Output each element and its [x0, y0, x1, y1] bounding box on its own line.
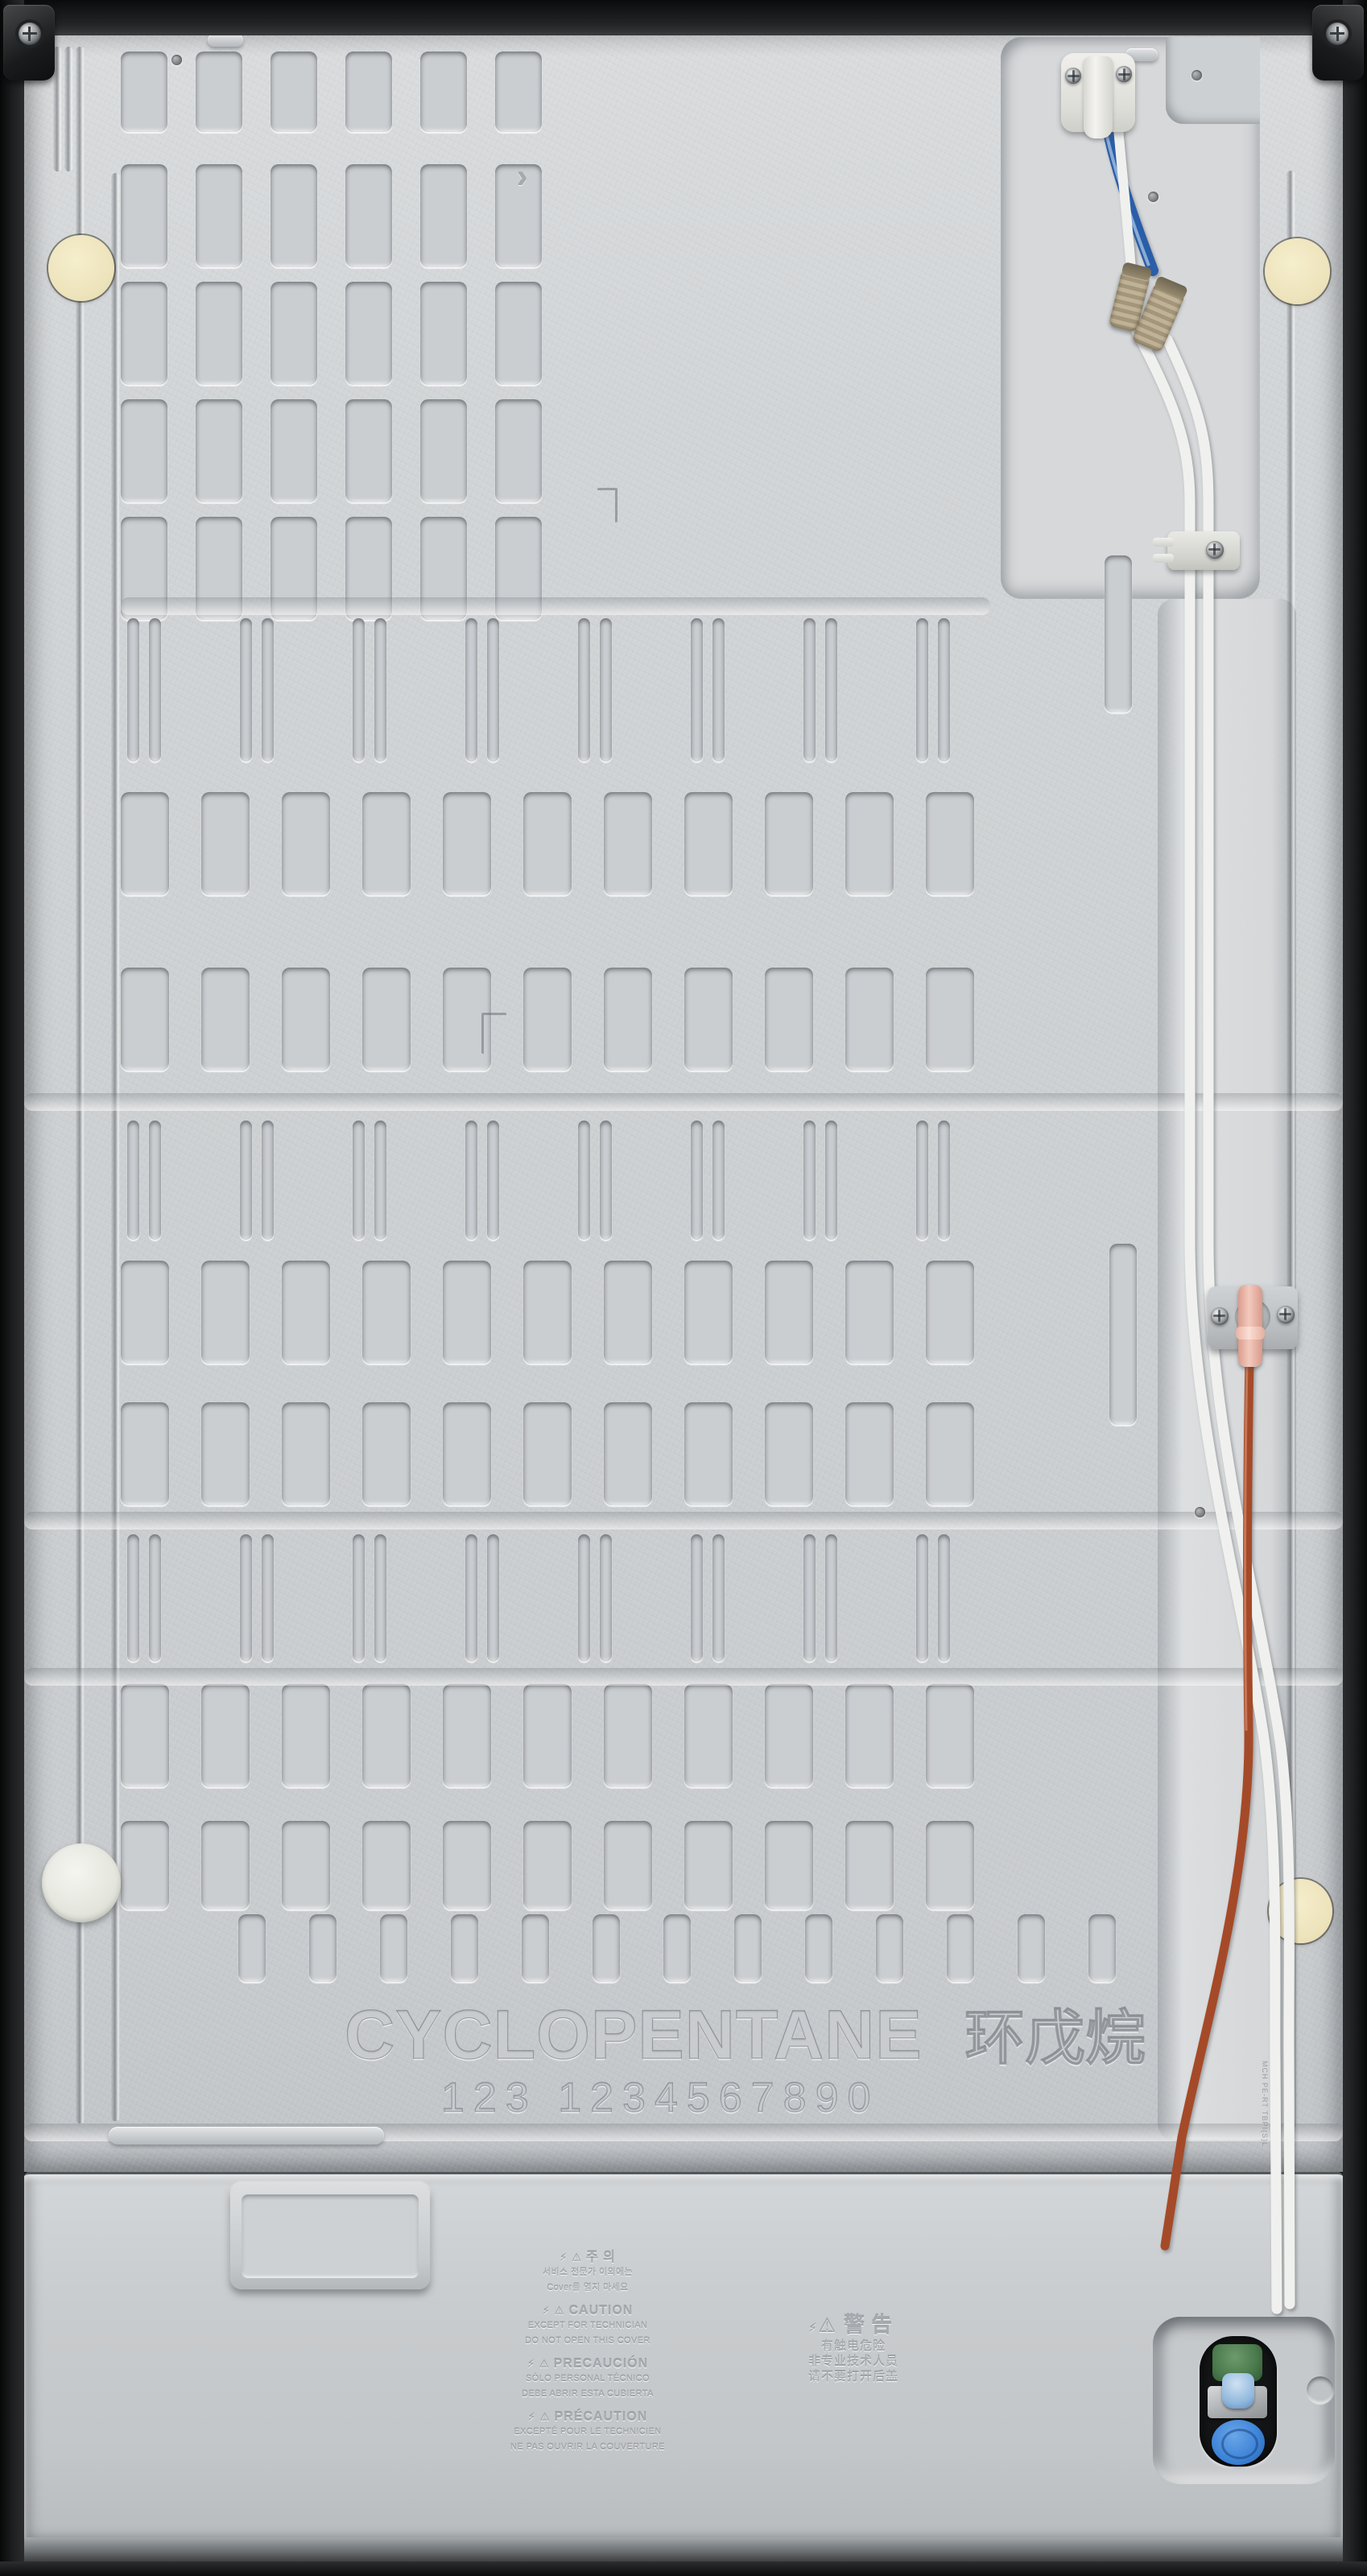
- embossed-slot-thin: [487, 1534, 499, 1662]
- caution-line: NE PAS OUVRIR LA COUVERTURE: [491, 2440, 684, 2455]
- embossed-slot: [201, 1684, 250, 1787]
- embossed-slot-thin: [374, 618, 386, 762]
- rivet: [1191, 70, 1202, 80]
- warning-line: 有触电危险: [793, 2339, 914, 2354]
- cover-bottom-edge: [24, 2537, 1343, 2562]
- tube-print-text: MCH PE-RT TBPI(S)L: [1261, 2061, 1269, 2147]
- warning-triangle-icon: ⚠: [819, 2315, 840, 2337]
- embossed-slot: [926, 1821, 974, 1909]
- embossed-slot: [345, 164, 392, 267]
- embossed-slot: [443, 792, 491, 895]
- embossed-slot-thin: [938, 1121, 950, 1240]
- embossed-slot-thin: [374, 1121, 386, 1240]
- embossed-slot: [765, 1684, 813, 1787]
- embossed-slot: [523, 1402, 572, 1505]
- embossed-slot: [926, 1684, 974, 1787]
- bracket-screw: [1065, 68, 1081, 84]
- embossed-slot: [604, 968, 652, 1071]
- recess-step: [1166, 37, 1260, 124]
- embossed-slot-thin: [465, 1534, 477, 1662]
- panel-groove: [76, 47, 85, 2124]
- lightning-icon: ⚡: [543, 2305, 551, 2317]
- embossed-slot: [121, 1261, 169, 1364]
- embossed-slot: [345, 282, 392, 385]
- embossed-slot-thin: [938, 618, 950, 762]
- embossed-slot-thin: [916, 1121, 928, 1240]
- embossed-slot: [345, 52, 392, 132]
- caution-label-column: ⚡⚠주 의 서비스 전문가 이외에는 Cover를 열지 마세요 ⚡⚠CAUTI…: [491, 2238, 684, 2455]
- tube-exit-bracket: [1061, 53, 1135, 132]
- embossed-slot-thin: [262, 1121, 274, 1240]
- caution-line: SÓLO PERSONAL TÉCNICO: [491, 2372, 684, 2387]
- embossed-slot: [201, 968, 250, 1071]
- embossed-slot: [845, 1261, 894, 1364]
- corner-bracket-top-left: [3, 5, 55, 80]
- water-inlet-cap: [1212, 2420, 1265, 2465]
- embossed-slot: [604, 1821, 652, 1909]
- embossed-slot: [362, 792, 411, 895]
- embossed-slot-thin: [712, 1121, 725, 1240]
- warning-triangle-icon: ⚠: [572, 2252, 582, 2264]
- embossed-slot: [282, 1402, 330, 1505]
- embossed-slot-thin: [578, 1534, 590, 1662]
- embossed-slot-thin: [487, 1121, 499, 1240]
- embossed-slot-thin: [691, 618, 703, 762]
- clamp-prong: [1153, 554, 1174, 563]
- embossed-slot: [201, 1402, 250, 1505]
- embossed-slot-narrow: [876, 1914, 903, 1982]
- embossed-slot: [604, 1261, 652, 1364]
- embossed-slot: [684, 1402, 733, 1505]
- caution-label-korean: ⚡⚠주 의 서비스 전문가 이외에는 Cover를 열지 마세요: [491, 2246, 684, 2296]
- embossed-slot-thin: [353, 618, 365, 762]
- embossed-slot: [201, 1261, 250, 1364]
- embossed-slot: [684, 1821, 733, 1909]
- caution-label-english: ⚡⚠CAUTION EXCEPT FOR TECHNICIAN DO NOT O…: [491, 2304, 684, 2349]
- embossed-slot-thin: [938, 1534, 950, 1662]
- rivet: [1148, 192, 1158, 202]
- lightning-icon: ⚡: [560, 2252, 568, 2264]
- embossed-slot: [271, 52, 317, 132]
- embossed-slot-narrow: [947, 1914, 974, 1982]
- embossed-slot-thin: [691, 1534, 703, 1662]
- embossed-slot: [196, 399, 242, 502]
- embossed-slot-thin: [1105, 555, 1132, 712]
- embossed-slot: [765, 1821, 813, 1909]
- warning-title-chinese: 警告: [844, 2313, 898, 2337]
- panel-crease: [24, 1093, 1343, 1111]
- embossed-slot-thin: [600, 1534, 612, 1662]
- refrigerator-back-panel-photo: CYCLOPENTANE 环戊烷 123 1234567890 › ⚡⚠주 의 …: [0, 0, 1367, 2576]
- water-inlet-fitting: [1222, 2373, 1254, 2409]
- embossed-slot-thin: [262, 1534, 274, 1662]
- embossed-slot: [282, 1261, 330, 1364]
- embossed-slot: [604, 792, 652, 895]
- embossed-slot-thin: [127, 618, 139, 762]
- embossed-slot: [201, 1821, 250, 1909]
- lightning-icon: ⚡: [808, 2322, 819, 2335]
- embossed-slot: [926, 792, 974, 895]
- embossed-slot-thin: [916, 1534, 928, 1662]
- caution-line: EXCEPTÉ POUR LE TECHNICIEN: [491, 2425, 684, 2440]
- bracket-screw: [1116, 66, 1132, 82]
- warning-line: 非专业技术人员: [793, 2354, 914, 2369]
- embossed-slot: [362, 1684, 411, 1787]
- embossed-slot: [443, 1821, 491, 1909]
- caution-line: Cover를 열지 마세요: [491, 2281, 684, 2296]
- embossed-slot: [282, 968, 330, 1071]
- embossed-rib: [208, 34, 243, 47]
- embossed-slot: [201, 792, 250, 895]
- embossed-rib: [109, 2127, 384, 2145]
- embossed-slot: [523, 968, 572, 1071]
- tube-bracket-tab: [1084, 56, 1113, 138]
- anchor-screw: [1277, 1306, 1295, 1323]
- warning-triangle-icon: ⚠: [540, 2411, 551, 2423]
- embossed-slot: [926, 968, 974, 1071]
- lightning-icon: ⚡: [528, 2411, 536, 2423]
- embossed-slot-thin: [240, 618, 252, 762]
- caution-title-french: PRÉCAUTION: [555, 2410, 648, 2424]
- caution-line: 서비스 전문가 이외에는: [491, 2265, 684, 2281]
- embossed-slot: [121, 282, 167, 385]
- embossed-slot-thin: [578, 618, 590, 762]
- embossed-slot: [765, 792, 813, 895]
- embossed-slot: [523, 1821, 572, 1909]
- caution-title-english: CAUTION: [568, 2304, 633, 2318]
- foam-pad-top-right: [1265, 238, 1330, 304]
- embossed-slot: [121, 792, 169, 895]
- caution-line: DEBE ABRIR ESTA CUBIERTA: [491, 2387, 684, 2402]
- lightning-icon: ⚡: [527, 2358, 535, 2370]
- embossed-slot: [523, 1261, 572, 1364]
- cabinet-left-edge: [0, 0, 24, 2576]
- embossed-slot: [121, 164, 167, 267]
- embossed-slot: [845, 1684, 894, 1787]
- embossed-slot: [271, 282, 317, 385]
- caution-title-korean: 주 의: [586, 2251, 616, 2264]
- corner-bracket-top-right: [1312, 5, 1364, 80]
- embossed-slot-thin: [465, 1121, 477, 1240]
- embossed-slot-thin: [149, 618, 161, 762]
- embossed-slot: [443, 1684, 491, 1787]
- embossed-slot: [121, 1821, 169, 1909]
- embossed-slot-thin: [353, 1121, 365, 1240]
- cyclopentane-cjk-label: 环戊烷: [964, 2004, 1146, 2071]
- embossed-slot: [362, 1821, 411, 1909]
- embossed-slot: [523, 1684, 572, 1787]
- rating-plate-face: [242, 2194, 419, 2278]
- embossed-slot: [684, 1684, 733, 1787]
- embossed-slot: [121, 968, 169, 1071]
- embossed-slot: [495, 399, 542, 502]
- plug-cap-bottom-left: [42, 1843, 121, 1922]
- embossed-digits-text: 123 1234567890: [441, 2074, 879, 2122]
- embossed-slot-thin: [353, 1534, 365, 1662]
- embossed-slot-thin: [374, 1534, 386, 1662]
- embossed-slot: [765, 1402, 813, 1505]
- embossed-slot-thin: [803, 618, 816, 762]
- rivet: [1195, 1507, 1205, 1517]
- cabinet-right-edge: [1343, 0, 1367, 2576]
- embossed-slot-thin: [825, 1121, 837, 1240]
- corner-screw: [1326, 23, 1348, 45]
- embossed-slot-narrow: [522, 1914, 549, 1982]
- warning-triangle-icon: ⚠: [539, 2358, 550, 2370]
- alignment-mark: [597, 488, 617, 522]
- caution-label-french: ⚡⚠PRÉCAUTION EXCEPTÉ POUR LE TECHNICIEN …: [491, 2410, 684, 2455]
- embossed-slot-thin: [825, 618, 837, 762]
- tube-clamp: [1167, 531, 1240, 570]
- embossed-slot: [282, 1821, 330, 1909]
- embossed-slot-thin: [803, 1534, 816, 1662]
- embossed-slot-thin: [240, 1121, 252, 1240]
- embossed-slot: [196, 164, 242, 267]
- embossed-cyclopentane-text: CYCLOPENTANE 环戊烷: [345, 1990, 1146, 2076]
- embossed-slot-thin: [916, 618, 928, 762]
- embossed-slot: [845, 1402, 894, 1505]
- clamp-prong: [1153, 538, 1174, 547]
- embossed-slot: [604, 1684, 652, 1787]
- rivet: [171, 55, 182, 65]
- anchor-screw: [1211, 1307, 1229, 1325]
- panel-groove: [111, 173, 120, 2121]
- embossed-slot: [282, 792, 330, 895]
- embossed-slot: [362, 1261, 411, 1364]
- chevron-emboss: ›: [517, 159, 527, 196]
- embossed-slot: [196, 52, 242, 132]
- foam-pad-top-left: [48, 235, 114, 301]
- embossed-slot: [443, 1261, 491, 1364]
- embossed-slot: [362, 968, 411, 1071]
- embossed-slot-thin: [825, 1534, 837, 1662]
- caution-title-spanish: PRECAUCIÓN: [554, 2357, 649, 2371]
- embossed-slot-thin: [262, 618, 274, 762]
- embossed-slot: [684, 968, 733, 1071]
- embossed-slot-thin: [578, 1121, 590, 1240]
- embossed-slot: [684, 1261, 733, 1364]
- cyclopentane-label: CYCLOPENTANE: [345, 1996, 923, 2074]
- embossed-slot: [845, 792, 894, 895]
- embossed-slot-narrow: [805, 1914, 832, 1982]
- embossed-slot: [765, 968, 813, 1071]
- embossed-slot-thin: [1109, 1244, 1137, 1425]
- embossed-slot-thin: [600, 618, 612, 762]
- embossed-slot-narrow: [380, 1914, 407, 1982]
- embossed-slot: [684, 792, 733, 895]
- embossed-slot: [845, 1821, 894, 1909]
- embossed-slot: [196, 282, 242, 385]
- embossed-slot-thin: [465, 618, 477, 762]
- embossed-slot-thin: [127, 1121, 139, 1240]
- clamp-screw: [1206, 541, 1224, 559]
- embossed-slot: [420, 282, 467, 385]
- embossed-slot-thin: [803, 1121, 816, 1240]
- embossed-slot: [345, 399, 392, 502]
- embossed-slot: [604, 1402, 652, 1505]
- caution-line: EXCEPT FOR TECHNICIAN: [491, 2318, 684, 2334]
- cabinet-top-edge: [0, 0, 1367, 35]
- embossed-slot: [926, 1402, 974, 1505]
- embossed-slot: [495, 52, 542, 132]
- embossed-slot: [420, 52, 467, 132]
- panel-groove: [64, 47, 73, 171]
- caution-label-spanish: ⚡⚠PRECAUCIÓN SÓLO PERSONAL TÉCNICO DEBE …: [491, 2357, 684, 2402]
- embossed-slot-thin: [487, 618, 499, 762]
- embossed-slot: [271, 164, 317, 267]
- embossed-slot-narrow: [309, 1914, 337, 1982]
- embossed-slot-thin: [712, 1534, 725, 1662]
- corner-screw: [19, 23, 41, 45]
- embossed-slot-narrow: [1088, 1914, 1116, 1982]
- embossed-slot: [523, 792, 572, 895]
- embossed-slot: [845, 968, 894, 1071]
- embossed-slot-thin: [600, 1121, 612, 1240]
- embossed-slot-thin: [149, 1534, 161, 1662]
- embossed-slot-thin: [712, 618, 725, 762]
- panel-groove: [1286, 171, 1295, 2122]
- embossed-slot: [443, 1402, 491, 1505]
- pink-tube-connector: [1238, 1285, 1262, 1367]
- warning-triangle-icon: ⚠: [555, 2305, 565, 2317]
- embossed-slot: [121, 399, 167, 502]
- warning-line: 请不要打开后盖: [793, 2369, 914, 2384]
- panel-crease: [24, 1512, 1343, 1529]
- embossed-slot-thin: [240, 1534, 252, 1662]
- panel-crease: [121, 597, 990, 615]
- floor-shadow: [0, 2562, 1367, 2576]
- embossed-slot-thin: [149, 1121, 161, 1240]
- caution-line: DO NOT OPEN THIS COVER: [491, 2334, 684, 2349]
- alignment-mark: [481, 1013, 506, 1054]
- embossed-slot-narrow: [451, 1914, 478, 1982]
- embossed-slot: [362, 1402, 411, 1505]
- embossed-slot-thin: [691, 1121, 703, 1240]
- access-hole: [1307, 2376, 1334, 2404]
- embossed-slot: [121, 1402, 169, 1505]
- rating-plate-boss: [230, 2183, 430, 2289]
- embossed-slot-narrow: [1018, 1914, 1045, 1982]
- warning-label-chinese: ⚡⚠警告 有触电危险 非专业技术人员 请不要打开后盖: [793, 2309, 914, 2384]
- embossed-slot: [271, 399, 317, 502]
- embossed-slot-narrow: [238, 1914, 266, 1982]
- embossed-slot: [926, 1261, 974, 1364]
- embossed-slot: [121, 52, 167, 132]
- embossed-slot: [420, 164, 467, 267]
- connector-band: [1236, 1327, 1265, 1340]
- embossed-slot: [121, 1684, 169, 1787]
- embossed-slot-narrow: [663, 1914, 691, 1982]
- embossed-slot-narrow: [593, 1914, 620, 1982]
- embossed-slot: [495, 282, 542, 385]
- embossed-slot-thin: [127, 1534, 139, 1662]
- panel-crease: [24, 1668, 1343, 1686]
- embossed-slot: [420, 399, 467, 502]
- embossed-slot-narrow: [734, 1914, 762, 1982]
- embossed-slot: [765, 1261, 813, 1364]
- embossed-slot: [282, 1684, 330, 1787]
- foam-pad-bottom-right: [1269, 1879, 1332, 1943]
